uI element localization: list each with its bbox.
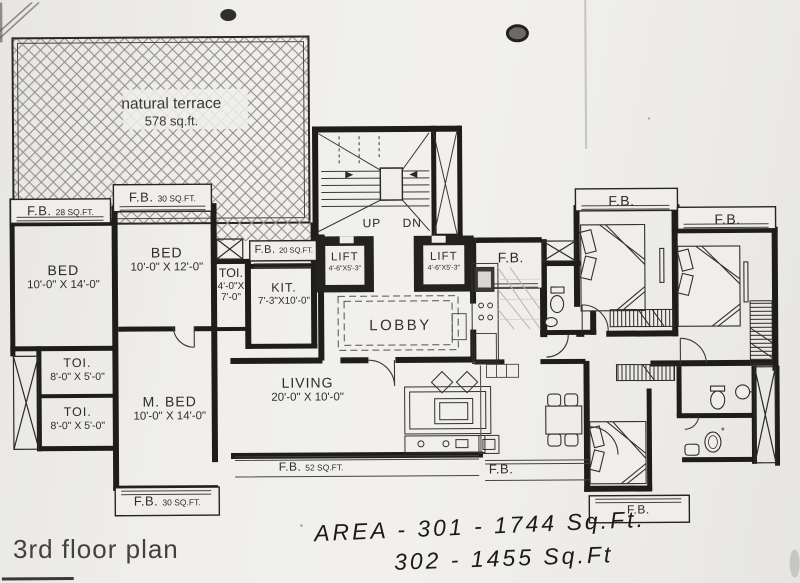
lift-left-name: LIFT — [325, 251, 365, 265]
toi-mid-dims2: 7'-0" — [213, 292, 249, 303]
dining-set — [546, 394, 582, 446]
shoe-rack — [486, 364, 518, 377]
bed-room-a — [580, 224, 664, 311]
fb-label: F.B. — [279, 460, 302, 474]
toi-lb-name: TOI. — [41, 405, 115, 420]
m-bed-name: M. BED — [125, 393, 215, 410]
terrace-label: natural terrace 578 sq.ft. — [104, 95, 239, 129]
toi-lt-name: TOI. — [40, 356, 114, 371]
bed-left-name: BED — [16, 262, 111, 279]
room-label-toi-left-bottom: TOI. 8'-0" X 5'-0" — [41, 405, 115, 433]
fb-bed-right-label: F.B. — [703, 211, 753, 228]
terrace-area: 578 sq.ft. — [104, 113, 239, 129]
fb-label: F.B. — [27, 203, 51, 218]
fb-area: 28 SQ.FT. — [56, 207, 94, 217]
room-label-living: LIVING 20'-0" X 10'-0" — [253, 374, 363, 405]
fb-label: F.B. — [129, 190, 153, 205]
fb-kitchen-20-label: F.B. 20 SQ.FT. — [250, 244, 318, 257]
fb-label: F.B. — [134, 493, 158, 508]
fb-living-52-label: F.B. 52 SQ.FT. — [241, 459, 381, 474]
bed-mid-name: BED — [122, 244, 212, 261]
stairs-down-label: DN — [403, 216, 422, 230]
fb-living-right-label: F.B. — [479, 461, 523, 477]
plan-title: 3rd floor plan — [13, 534, 179, 565]
fb-label: F.B. — [498, 249, 524, 265]
living-dims: 20'-0" X 10'-0" — [253, 391, 363, 405]
kit-dims: 7'-3"X10'-0" — [251, 295, 317, 307]
beds — [580, 224, 749, 484]
room-label-bed-left: BED 10'-0" X 14'-0" — [16, 262, 111, 293]
fb-label: F.B. — [714, 211, 740, 227]
room-label-lobby: LOBBY — [369, 317, 429, 335]
toi-lt-dims: 8'-0" X 5'-0" — [40, 370, 114, 383]
toi-lb-dims: 8'-0" X 5'-0" — [41, 419, 115, 432]
fb-label: F.B. — [255, 244, 276, 256]
room-label-bed-mid: BED 10'-0" X 12'-0" — [122, 244, 212, 275]
fb-left-28-label: F.B. 28 SQ.FT. — [10, 203, 110, 219]
fb-area: 30 SQ.FT. — [158, 193, 196, 203]
room-label-lift-left: LIFT 4'-6"X5'-3" — [325, 251, 365, 273]
floor-plan: natural terrace 578 sq.ft. F.B. 30 SQ.FT… — [0, 0, 800, 583]
fb-label: F.B. — [608, 193, 634, 209]
fb-area: 20 SQ.FT. — [279, 246, 313, 255]
fb-top-30-label: F.B. 30 SQ.FT. — [113, 189, 211, 205]
room-label-lift-right: LIFT 4'-6"X5'-3" — [423, 251, 465, 273]
toi-mid-dims1: 4'-0"X — [213, 281, 249, 292]
sofa-tv-unit — [404, 371, 498, 454]
terrace-name: natural terrace — [104, 95, 239, 114]
stairs-up-label: UP — [363, 216, 382, 230]
room-label-toi-mid: TOI. 4'-0"X 7'-0" — [213, 267, 249, 303]
bed-room-b — [677, 246, 748, 326]
m-bed-dims: 10'-0" X 14'-0" — [125, 410, 215, 424]
kit-name: KIT. — [251, 281, 317, 296]
bed-mid-dims: 10'-0" X 12'-0" — [122, 261, 212, 275]
living-name: LIVING — [253, 374, 363, 391]
room-label-toi-left-top: TOI. 8'-0" X 5'-0" — [40, 356, 114, 384]
fb-bed-top-label: F.B. — [596, 192, 646, 209]
room-label-m-bed: M. BED 10'-0" X 14'-0" — [125, 393, 215, 424]
lift-right-name: LIFT — [423, 251, 465, 265]
fb-bottom-30-label: F.B. 30 SQ.FT. — [115, 493, 219, 509]
scanned-floor-plan-page: natural terrace 578 sq.ft. F.B. 30 SQ.FT… — [0, 0, 800, 583]
flower-box-outlines — [10, 181, 777, 527]
fb-area: 30 SQ.FT. — [162, 497, 200, 507]
fb-lift-label: F.B. — [489, 249, 533, 266]
fb-label: F.B. — [489, 461, 513, 476]
bed-left-dims: 10'-0" X 14'-0" — [16, 278, 111, 292]
toi-mid-name: TOI. — [213, 267, 249, 281]
room-label-kit: KIT. 7'-3"X10'-0" — [251, 281, 317, 308]
lift-right-dims: 4'-6"X5'-3" — [423, 264, 465, 273]
lift-left-dims: 4'-6"X5'-3" — [325, 265, 365, 273]
fb-area: 52 SQ.FT. — [305, 462, 343, 472]
staircase — [318, 131, 458, 238]
